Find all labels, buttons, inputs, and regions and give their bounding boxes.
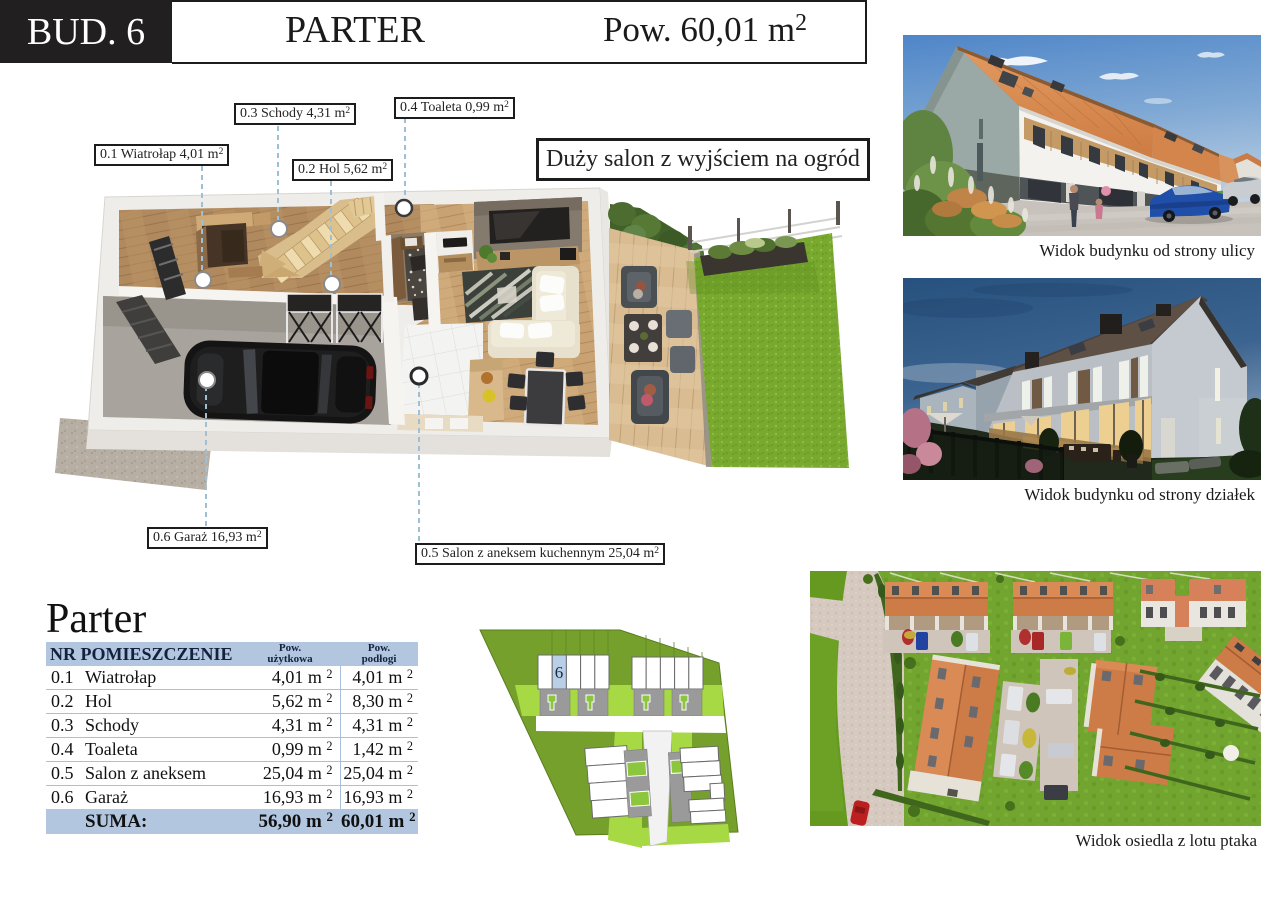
svg-text:6: 6 [555,663,564,682]
